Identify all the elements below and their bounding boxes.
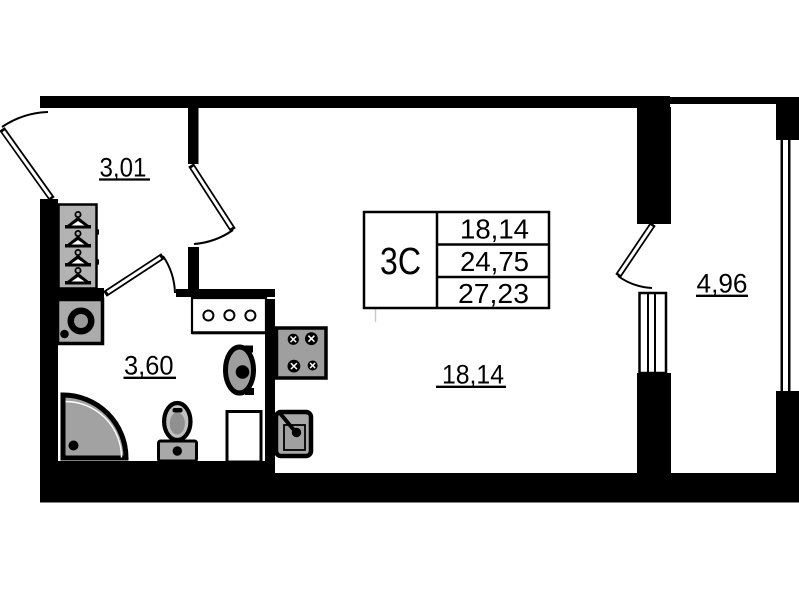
svg-text:3C: 3C bbox=[380, 241, 421, 283]
svg-text:3,01: 3,01 bbox=[100, 153, 147, 183]
svg-text:18,14: 18,14 bbox=[442, 360, 504, 390]
svg-text:3,60: 3,60 bbox=[124, 351, 174, 381]
svg-text:27,23: 27,23 bbox=[458, 278, 529, 309]
svg-text:4,96: 4,96 bbox=[697, 269, 748, 299]
svg-text:18,14: 18,14 bbox=[460, 214, 529, 245]
svg-text:24,75: 24,75 bbox=[460, 246, 529, 277]
